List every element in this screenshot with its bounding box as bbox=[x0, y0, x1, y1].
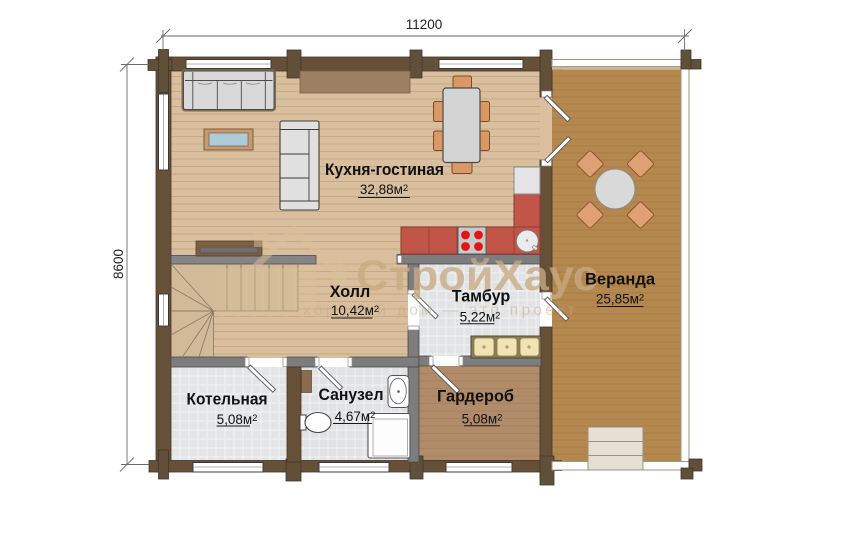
svg-text:Веранда: Веранда bbox=[585, 271, 656, 289]
svg-text:5,08м2: 5,08м2 bbox=[462, 412, 503, 427]
svg-text:Санузел: Санузел bbox=[319, 386, 384, 404]
svg-text:4,67м2: 4,67м2 bbox=[335, 409, 376, 424]
svg-text:Котельная: Котельная bbox=[187, 391, 268, 409]
svg-text:Тамбур: Тамбур bbox=[452, 288, 511, 306]
svg-text:Гардероб: Гардероб bbox=[437, 388, 514, 406]
svg-text:Холл: Холл bbox=[330, 283, 371, 301]
svg-text:10,42м2: 10,42м2 bbox=[331, 303, 379, 318]
svg-text:11200: 11200 bbox=[406, 17, 443, 32]
svg-text:5,22м2: 5,22м2 bbox=[460, 310, 501, 325]
svg-text:32,88м2: 32,88м2 bbox=[360, 182, 408, 197]
svg-text:8600: 8600 bbox=[111, 249, 126, 279]
svg-text:Кухня-гостиная: Кухня-гостиная bbox=[325, 161, 444, 179]
svg-text:25,85м2: 25,85м2 bbox=[596, 292, 644, 307]
svg-text:5,08м2: 5,08м2 bbox=[217, 412, 258, 427]
